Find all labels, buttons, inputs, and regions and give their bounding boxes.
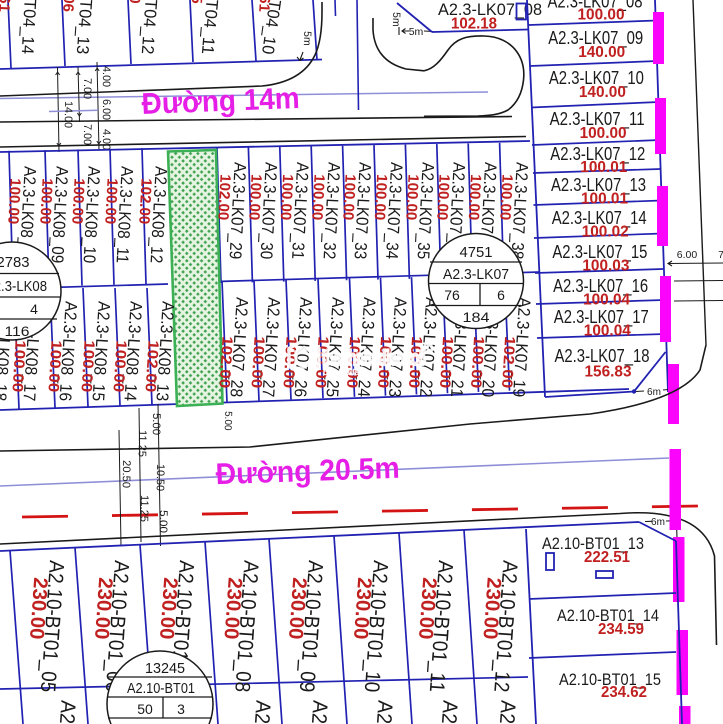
- svg-text:A2.3-LK08: A2.3-LK08: [0, 279, 47, 295]
- svg-text:3: 3: [177, 701, 185, 717]
- svg-text:A2.3-LK07: A2.3-LK07: [443, 267, 509, 283]
- svg-text:4.00: 4.00: [100, 66, 112, 87]
- svg-text:20.50: 20.50: [120, 460, 132, 488]
- svg-text:06: 06: [59, 0, 77, 12]
- svg-text:184: 184: [463, 309, 490, 325]
- svg-text:156.83: 156.83: [585, 364, 632, 381]
- svg-text:4: 4: [30, 301, 38, 317]
- svg-text:140.00: 140.00: [578, 44, 625, 61]
- svg-text:100.00: 100.00: [496, 174, 515, 221]
- svg-text:100.00: 100.00: [578, 7, 625, 24]
- svg-text:6.00: 6.00: [100, 99, 112, 120]
- svg-text:100.04: 100.04: [584, 323, 631, 340]
- svg-text:100.00: 100.00: [277, 174, 296, 221]
- svg-text:230.00: 230.00: [284, 577, 310, 640]
- svg-text:234.59: 234.59: [598, 621, 644, 638]
- svg-text:100.02: 100.02: [582, 224, 629, 241]
- svg-text:230.00: 230.00: [90, 577, 116, 640]
- svg-text:13245: 13245: [145, 660, 185, 677]
- svg-text:100.00: 100.00: [339, 174, 358, 221]
- svg-text:50: 50: [137, 701, 153, 717]
- svg-text:10.50: 10.50: [154, 464, 166, 491]
- svg-text:100.00: 100.00: [4, 178, 23, 225]
- svg-text:Đường 20.5m: Đường 20.5m: [215, 452, 400, 491]
- svg-text:100.03: 100.03: [582, 258, 629, 275]
- svg-text:102.00: 102.00: [214, 174, 233, 221]
- svg-text:222.51: 222.51: [584, 549, 630, 566]
- svg-text:61: 61: [0, 0, 13, 12]
- svg-text:7: 7: [718, 249, 723, 261]
- svg-text:102.18: 102.18: [451, 16, 497, 33]
- svg-text:234.62: 234.62: [601, 684, 647, 701]
- svg-text:100.00: 100.00: [8, 340, 28, 393]
- svg-text:61: 61: [255, 0, 273, 12]
- svg-text:230.00: 230.00: [349, 577, 375, 640]
- svg-text:100.00: 100.00: [433, 174, 452, 221]
- svg-text:6.00: 6.00: [677, 249, 698, 261]
- svg-text:100.00: 100.00: [245, 174, 264, 221]
- svg-text:100.00: 100.00: [109, 340, 129, 393]
- svg-text:140.00: 140.00: [579, 84, 626, 101]
- svg-text:2783: 2783: [0, 254, 30, 271]
- svg-text:5.00: 5.00: [157, 510, 169, 533]
- svg-text:100.00: 100.00: [436, 336, 456, 389]
- svg-text:T04_12: T04_12: [138, 0, 161, 55]
- svg-text:100.01: 100.01: [580, 159, 627, 176]
- svg-text:14.00: 14.00: [62, 101, 74, 128]
- svg-text:100.00: 100.00: [465, 174, 484, 221]
- svg-text:100.04: 100.04: [583, 292, 630, 309]
- svg-text:11.25: 11.25: [138, 495, 150, 522]
- svg-text:100.00: 100.00: [77, 340, 97, 393]
- svg-text:100.00: 100.00: [36, 178, 55, 225]
- svg-text:100.00: 100.00: [371, 174, 390, 221]
- svg-text:5m: 5m: [390, 12, 403, 27]
- svg-text:100.00: 100.00: [247, 336, 267, 389]
- svg-text:5.00: 5.00: [222, 411, 234, 431]
- svg-text:5m: 5m: [409, 26, 424, 38]
- svg-text:5.00: 5.00: [150, 413, 162, 435]
- svg-text:230.00: 230.00: [219, 577, 245, 640]
- svg-text:230.00: 230.00: [25, 577, 51, 640]
- svg-text:7.00: 7.00: [81, 78, 93, 99]
- svg-text:6m: 6m: [651, 517, 665, 528]
- svg-text:6m: 6m: [647, 387, 661, 398]
- svg-text:100.00: 100.00: [467, 336, 487, 389]
- svg-text:76: 76: [444, 287, 460, 303]
- svg-text:4.00: 4.00: [100, 129, 112, 150]
- svg-text:100.00: 100.00: [101, 178, 120, 225]
- svg-text:100.00: 100.00: [580, 125, 627, 142]
- svg-text:102.00: 102.00: [141, 340, 161, 393]
- svg-text:102.00: 102.00: [215, 336, 235, 389]
- svg-text:100.00: 100.00: [402, 174, 421, 221]
- svg-text:100.01: 100.01: [581, 191, 628, 208]
- svg-text:Đường 14m: Đường 14m: [141, 82, 300, 121]
- svg-text:.vn: .vn: [416, 340, 433, 354]
- svg-text:100.00: 100.00: [44, 340, 64, 393]
- svg-text:230.00: 230.00: [155, 577, 181, 640]
- svg-text:102.00: 102.00: [498, 336, 518, 389]
- svg-text:11.25: 11.25: [136, 430, 148, 457]
- svg-text:116: 116: [5, 323, 30, 339]
- svg-text:T04_14: T04_14: [18, 0, 40, 55]
- svg-text:6: 6: [497, 287, 505, 303]
- svg-text:by Nhadatland: by Nhadatland: [323, 367, 378, 377]
- svg-text:230.00: 230.00: [414, 577, 440, 640]
- svg-text:230.00: 230.00: [478, 577, 504, 640]
- svg-text:102.00: 102.00: [135, 178, 154, 225]
- svg-text:7.00: 7.00: [81, 124, 93, 145]
- svg-text:100.00: 100.00: [68, 178, 87, 225]
- svg-text:100.00: 100.00: [308, 174, 327, 221]
- svg-text:A2.10-BT01: A2.10-BT01: [127, 681, 195, 697]
- svg-text:5m: 5m: [301, 31, 314, 46]
- svg-text:4751: 4751: [460, 244, 493, 261]
